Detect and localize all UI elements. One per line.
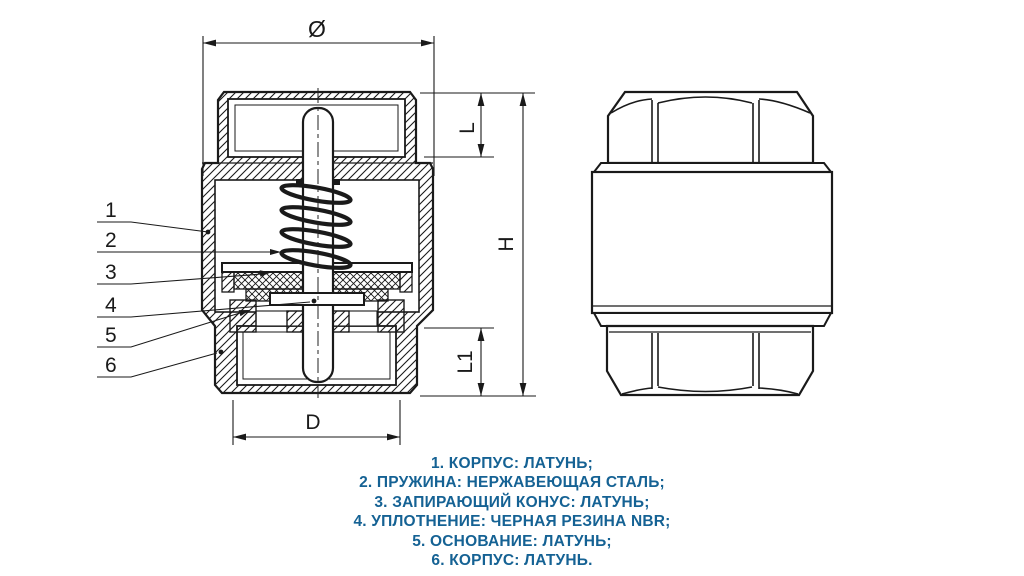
dimension-bottom-thread-length: L1 [424,328,494,396]
callout-number: 3 [105,261,117,284]
callout-number: 1 [105,199,117,222]
top-collar [594,163,831,172]
legend-item-1: 1. КОРПУС: ЛАТУНЬ; [0,454,1024,473]
parts-legend: 1. КОРПУС: ЛАТУНЬ; 2. ПРУЖИНА: НЕРЖАВЕЮЩ… [0,454,1024,570]
valve-body-external [592,172,832,313]
dimension-bottom-diameter: D [233,400,400,445]
external-view [592,92,832,395]
guide-block-left [287,311,303,332]
seat-block-left [230,300,256,332]
bottom-collar [594,313,831,326]
dimension-total-height: H [420,93,536,396]
bottom-thread-length-label: L1 [454,350,477,373]
callout-6-lower-body: 6 [97,350,223,377]
disc-rim-left [222,272,234,292]
stem-packing-right [333,179,340,185]
callout-number: 6 [105,354,117,377]
diameter-label: Ø [308,16,326,42]
disc-hub [270,293,364,305]
dimension-top-thread-length: L [420,93,535,157]
bottom-diameter-label: D [305,411,320,434]
bottom-hex-nut [607,326,813,395]
legend-item-2: 2. ПРУЖИНА: НЕРЖАВЕЮЩАЯ СТАЛЬ; [0,473,1024,492]
callout-number: 5 [105,324,117,347]
check-valve-technical-drawing: Ø L H L1 [0,0,1024,576]
guide-block-right [333,311,349,332]
callout-number: 4 [105,294,117,317]
legend-item-5: 5. ОСНОВАНИЕ: ЛАТУНЬ; [0,532,1024,551]
callout-number: 2 [105,229,117,252]
legend-item-4: 4. УПЛОТНЕНИЕ: ЧЕРНАЯ РЕЗИНА NBR; [0,512,1024,531]
top-thread-length-label: L [456,122,479,134]
legend-item-3: 3. ЗАПИРАЮЩИЙ КОНУС: ЛАТУНЬ; [0,493,1024,512]
disc-rim-right [400,272,412,292]
cross-section-view [202,88,433,398]
seat-block-right [378,300,404,332]
legend-item-6: 6. КОРПУС: ЛАТУНЬ. [0,551,1024,570]
total-height-label: H [495,236,518,251]
